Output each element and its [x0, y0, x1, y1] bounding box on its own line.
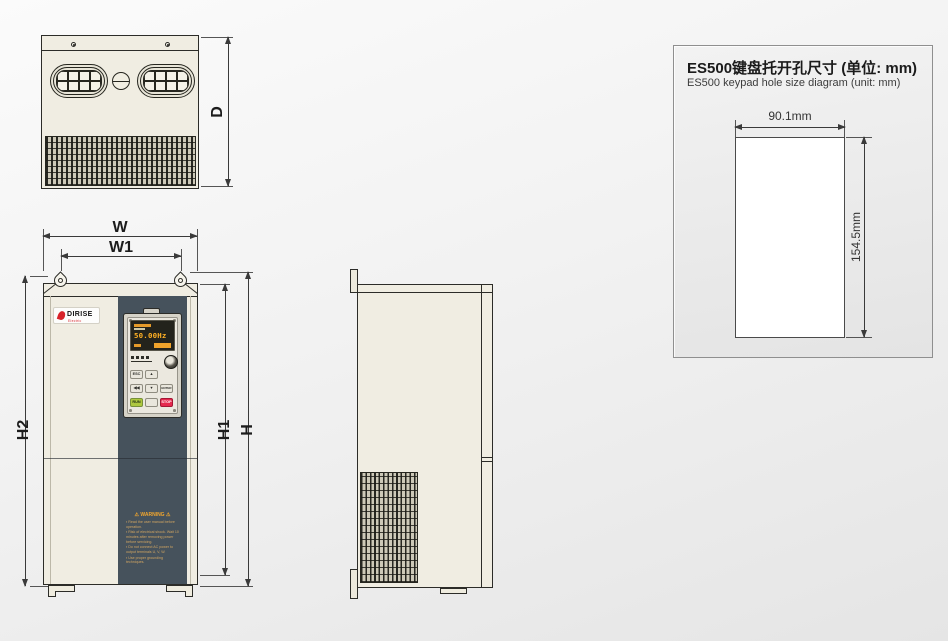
- screw-hole-icon: [165, 42, 170, 47]
- side-bottom-notch: [440, 588, 467, 594]
- top-view-plate-line: [41, 50, 199, 51]
- heatsink-fins: [45, 136, 196, 186]
- extension-line: [30, 276, 48, 277]
- display-menu-bar: [134, 328, 145, 330]
- extension-line: [30, 586, 48, 587]
- body-seam-line: [44, 458, 197, 459]
- side-plate-line: [357, 292, 493, 293]
- vent-ring: [140, 67, 192, 95]
- display-status-bar: [134, 324, 151, 327]
- screw-hole-icon: [71, 42, 76, 47]
- down-arrow-button[interactable]: ▼: [145, 384, 158, 393]
- foot-hook: [185, 591, 193, 597]
- display-mode-badge: [154, 343, 171, 348]
- panel-title-zh: ES500键盘托开孔尺寸 (单位: mm): [687, 57, 917, 78]
- run-button[interactable]: RUN: [130, 398, 143, 407]
- logo-icon: [57, 310, 66, 321]
- dim-line-cutout-width: [735, 127, 845, 128]
- keypad-cutout-rect: [735, 137, 845, 338]
- side-mounting-tab: [350, 569, 358, 599]
- shift-button[interactable]: ◀◀: [130, 384, 143, 393]
- display-footer-bar: [134, 344, 141, 347]
- warning-line: ▪ Risk of electrical shock. Wait 10 minu…: [126, 530, 179, 544]
- dim-line-cutout-height: [864, 137, 865, 337]
- logo-text: DIRISE: [67, 311, 93, 318]
- dim-label-h: H: [234, 410, 262, 450]
- cover-divider-line: [481, 457, 493, 458]
- vent-ring: [53, 67, 105, 95]
- warning-line: ▪ Read the user manual before operation.: [126, 520, 179, 529]
- cutout-height-label: 154.5mm: [849, 197, 863, 277]
- panel-edge-line: [190, 296, 191, 584]
- dimension-diagram-page: D W W1 DIRISE Electric: [0, 0, 948, 641]
- side-heatsink-fins: [360, 472, 418, 583]
- keypad-screw-icon: [129, 409, 132, 412]
- vent-grill: [50, 64, 108, 98]
- front-cover-edge-line: [481, 284, 482, 588]
- jog-button[interactable]: [145, 398, 158, 407]
- foot-hook: [48, 591, 56, 597]
- logo-subtext: Electric: [68, 319, 82, 323]
- cover-divider-line: [481, 461, 493, 462]
- dim-label-d: D: [204, 97, 232, 127]
- panel-title-en: ES500 keypad hole size diagram (unit: mm…: [687, 77, 900, 89]
- warning-line: ▪ Use proper grounding techniques.: [126, 556, 179, 565]
- side-mounting-tab: [350, 269, 358, 293]
- cutout-width-label: 90.1mm: [750, 109, 830, 123]
- potentiometer-knob[interactable]: [164, 355, 178, 369]
- vent-grid: [143, 70, 189, 92]
- warning-line: ▪ Do not connect AC power to output term…: [126, 545, 179, 554]
- warning-title: ⚠ WARNING ⚠: [126, 512, 179, 518]
- dim-label-h2: H2: [10, 410, 38, 450]
- warning-label: ⚠ WARNING ⚠ ▪ Read the user manual befor…: [126, 512, 179, 566]
- vent-grill: [137, 64, 195, 98]
- esc-button[interactable]: ESC: [130, 370, 143, 379]
- dim-label-w: W: [100, 219, 140, 237]
- extension-line: [846, 337, 872, 338]
- keypad-screw-icon: [173, 409, 176, 412]
- cable-gland-icon: [112, 72, 130, 90]
- up-arrow-button[interactable]: ▲: [145, 370, 158, 379]
- panel-edge-line: [50, 296, 51, 584]
- extension-line: [190, 272, 253, 273]
- extension-line: [846, 137, 872, 138]
- brand-logo: DIRISE Electric: [53, 307, 100, 324]
- stop-button[interactable]: STOP: [160, 398, 173, 407]
- display-frequency-value: 50.00Hz: [134, 331, 173, 340]
- vent-grid: [56, 70, 102, 92]
- enter-button[interactable]: ENTER: [160, 384, 173, 393]
- dim-label-w1: W1: [101, 239, 141, 257]
- keypad-display: 50.00Hz: [130, 320, 175, 351]
